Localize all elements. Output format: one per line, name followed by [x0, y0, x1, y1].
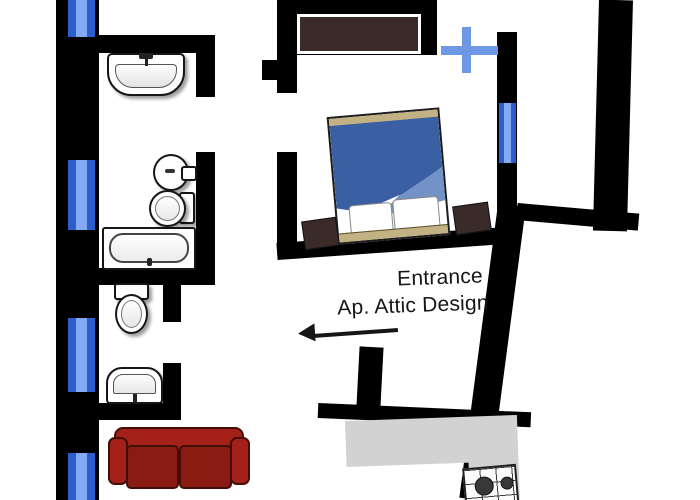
- sofa-arm-right: [230, 437, 250, 485]
- window-bedroom-right: [499, 103, 516, 163]
- wall-wc-right-upper: [163, 285, 181, 322]
- apartment-name-label: Ap. Attic Design: [318, 291, 509, 322]
- toilet-wc-icon: [112, 283, 150, 333]
- wall-bedroom-left-lower: [277, 152, 297, 252]
- entrance-label: Entrance: [370, 264, 511, 293]
- toilet-seat: [121, 300, 142, 328]
- wall-bathroom-right-upper: [196, 35, 215, 97]
- window-pane: [76, 318, 87, 392]
- wall-entrance-stub: [356, 346, 383, 407]
- toilet-bowl: [115, 294, 148, 334]
- wardrobe-icon: [297, 14, 421, 54]
- door-marker-cross-vertical: [462, 27, 471, 73]
- toilet-bowl: [149, 190, 186, 227]
- toilet-icon: [149, 190, 194, 224]
- wall-right-exterior: [593, 0, 633, 231]
- hand-sink-icon: [106, 367, 163, 404]
- window-left-2: [68, 160, 95, 230]
- wall-wc-bottom: [98, 403, 181, 420]
- sofa-arm-left: [108, 437, 128, 485]
- double-sink-icon: [107, 53, 185, 96]
- wall-wc-right-lower: [163, 363, 181, 405]
- bidet-drain: [165, 169, 175, 173]
- wall-bedroom-left-notch: [262, 60, 278, 80]
- sink-basin: [113, 374, 156, 394]
- faucet-icon: [133, 394, 137, 403]
- toilet-seat: [155, 196, 180, 221]
- wall-bathroom-right-lower: [196, 152, 215, 285]
- window-pane: [76, 160, 87, 230]
- nightstand-right-icon: [452, 202, 492, 236]
- wardrobe-body: [300, 17, 418, 51]
- bathtub-faucet: [147, 258, 152, 266]
- sink-basin: [115, 64, 177, 88]
- bidet-icon: [153, 154, 189, 191]
- bathtub-icon: [102, 227, 196, 270]
- window-pane: [76, 0, 87, 37]
- entrance-arrow-shaft: [313, 328, 398, 338]
- nightstand-left-icon: [301, 217, 340, 251]
- entrance-arrow-head-icon: [297, 323, 315, 342]
- window-left-1: [68, 0, 95, 37]
- window-left-4: [68, 453, 95, 500]
- sofa-seat-right: [179, 445, 232, 489]
- sofa-seat-left: [126, 445, 179, 489]
- window-left-3: [68, 318, 95, 392]
- window-pane: [504, 103, 511, 163]
- bidet-tap: [181, 166, 197, 181]
- window-pane: [76, 453, 87, 500]
- double-bed-icon: [327, 107, 451, 244]
- stove-icon: [462, 464, 520, 500]
- sofa-icon: [108, 427, 250, 490]
- floor-plan: Entrance Ap. Attic Design: [0, 0, 700, 500]
- wall-left-exterior: [56, 0, 99, 500]
- faucet-spout: [145, 58, 148, 66]
